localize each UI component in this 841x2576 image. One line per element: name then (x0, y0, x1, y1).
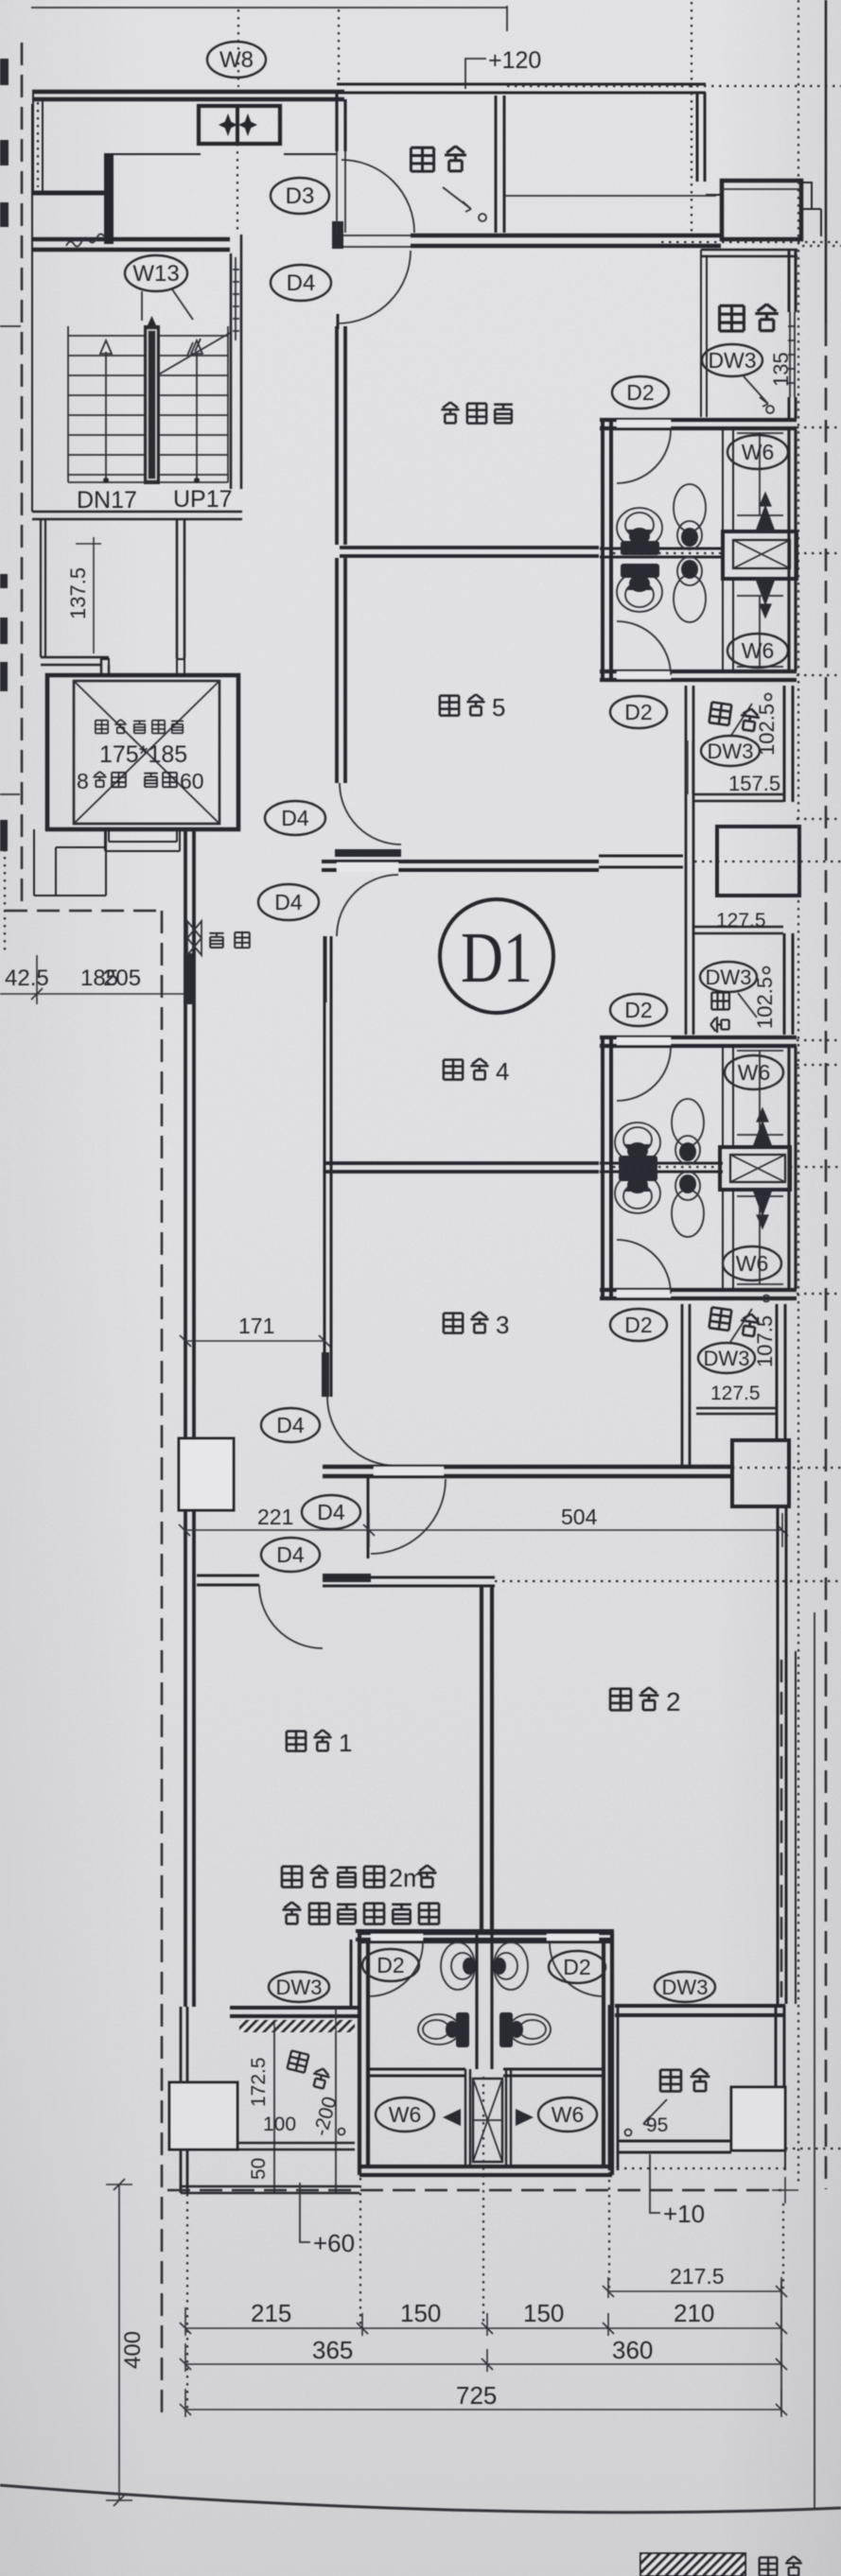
svg-text:1: 1 (339, 1729, 352, 1757)
svg-text:+10: +10 (663, 2200, 705, 2228)
svg-text:DW3: DW3 (708, 740, 754, 763)
svg-text:50: 50 (248, 2158, 270, 2180)
svg-text:2: 2 (666, 1687, 681, 1716)
svg-text:42.5: 42.5 (5, 966, 49, 991)
svg-text:127.5: 127.5 (710, 1383, 761, 1404)
svg-text:60: 60 (180, 769, 204, 793)
svg-text:127.5: 127.5 (716, 910, 766, 931)
svg-text:W13: W13 (132, 261, 179, 287)
svg-text:D2: D2 (624, 998, 652, 1022)
svg-text:W6: W6 (742, 638, 775, 663)
svg-text:3: 3 (496, 1311, 509, 1339)
svg-text:137.5: 137.5 (66, 567, 90, 619)
svg-text:D4: D4 (317, 1500, 345, 1524)
svg-text:DW3: DW3 (276, 1976, 323, 1999)
svg-text:W6: W6 (738, 1060, 771, 1085)
svg-text:D3: D3 (286, 183, 315, 209)
svg-text:210: 210 (674, 2299, 714, 2327)
svg-text:D4: D4 (287, 270, 316, 296)
svg-text:D2: D2 (624, 700, 652, 724)
svg-text:102.5: 102.5 (753, 977, 777, 1029)
svg-text:+60: +60 (313, 2229, 355, 2257)
svg-text:DW3: DW3 (706, 966, 752, 989)
svg-text:215: 215 (251, 2299, 291, 2327)
svg-text:150: 150 (523, 2299, 564, 2327)
svg-text:175*185: 175*185 (99, 741, 187, 768)
svg-text:2m: 2m (389, 1864, 425, 1892)
svg-text:360: 360 (612, 2336, 653, 2364)
svg-text:135: 135 (769, 352, 793, 387)
svg-text:D2: D2 (563, 1955, 590, 1979)
svg-text:DW3: DW3 (704, 1347, 750, 1370)
svg-text:5: 5 (492, 693, 505, 722)
svg-text:W6: W6 (552, 2102, 585, 2127)
svg-text:D4: D4 (276, 1542, 305, 1567)
svg-text:4: 4 (496, 1057, 509, 1086)
svg-text:W6: W6 (742, 440, 775, 464)
svg-text:172.5: 172.5 (248, 2057, 270, 2107)
svg-text:217.5: 217.5 (670, 2264, 725, 2289)
svg-text:W8: W8 (219, 47, 254, 73)
svg-text:8: 8 (77, 769, 89, 793)
svg-text:+120: +120 (488, 47, 541, 74)
svg-text:D2: D2 (377, 1953, 404, 1977)
svg-text:365: 365 (312, 2336, 353, 2364)
svg-text:D2: D2 (626, 380, 654, 405)
svg-text:221: 221 (257, 1505, 293, 1529)
svg-text:100: 100 (263, 2114, 296, 2135)
svg-text:W6: W6 (736, 1251, 769, 1276)
svg-text:95: 95 (646, 2115, 668, 2136)
svg-text:150: 150 (400, 2299, 441, 2327)
svg-text:DN17: DN17 (77, 487, 137, 513)
svg-text:UP17: UP17 (173, 486, 233, 513)
svg-text:205: 205 (103, 966, 141, 991)
svg-text:171: 171 (238, 1314, 274, 1338)
svg-text:DW3: DW3 (662, 1976, 709, 1999)
svg-text:D4: D4 (276, 1413, 305, 1437)
svg-text:D1: D1 (461, 918, 533, 998)
svg-text:D4: D4 (281, 806, 309, 830)
svg-text:D2: D2 (624, 1313, 652, 1337)
svg-text:107.5: 107.5 (753, 1315, 777, 1367)
svg-text:725: 725 (456, 2381, 497, 2410)
svg-text:400: 400 (120, 2331, 146, 2369)
svg-text:D4: D4 (274, 890, 303, 914)
svg-text:DW3: DW3 (708, 348, 756, 373)
svg-text:157.5: 157.5 (728, 772, 780, 795)
svg-text:W6: W6 (389, 2102, 422, 2127)
svg-text:504: 504 (561, 1505, 598, 1529)
